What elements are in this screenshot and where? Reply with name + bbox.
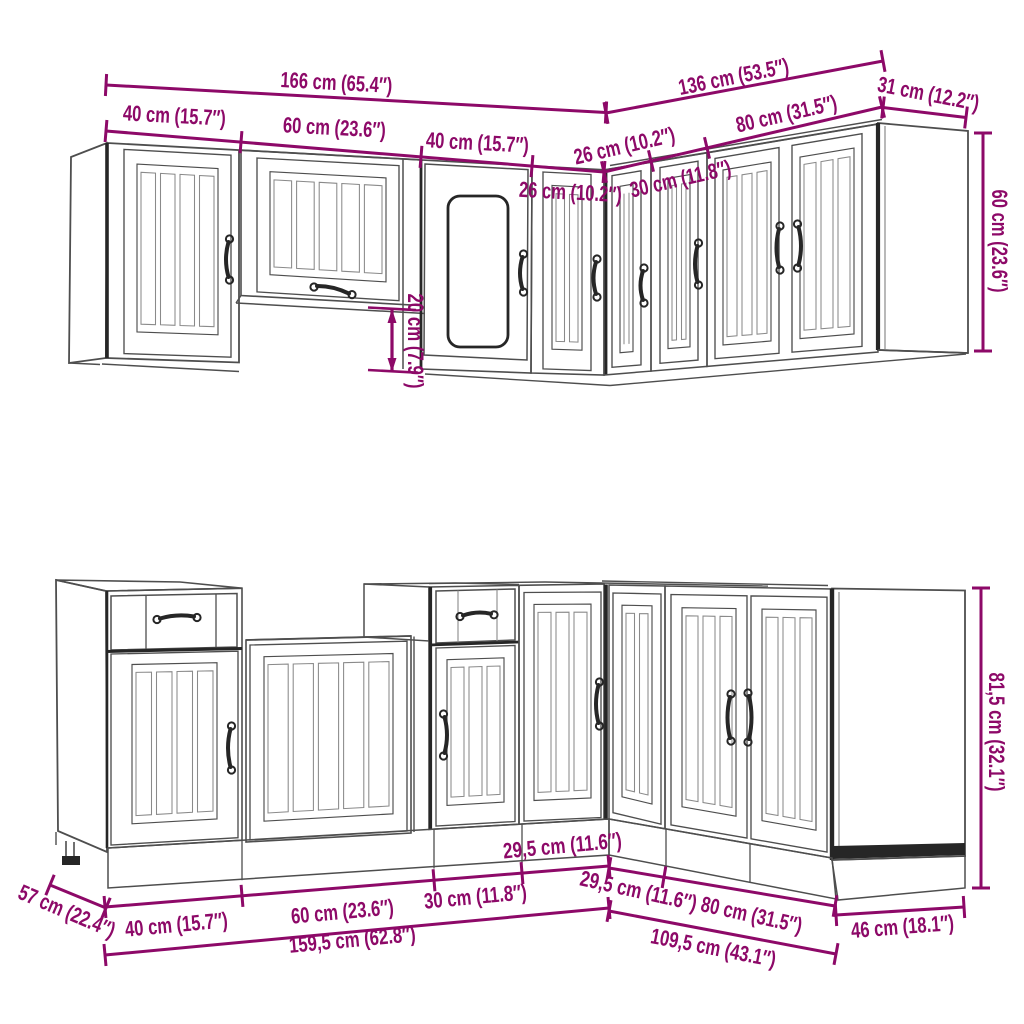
svg-text:81,5 cm (32.1″): 81,5 cm (32.1″): [984, 673, 1009, 792]
svg-text:20 cm (7.9″): 20 cm (7.9″): [403, 294, 428, 389]
svg-text:60 cm (23.6″): 60 cm (23.6″): [987, 190, 1012, 293]
